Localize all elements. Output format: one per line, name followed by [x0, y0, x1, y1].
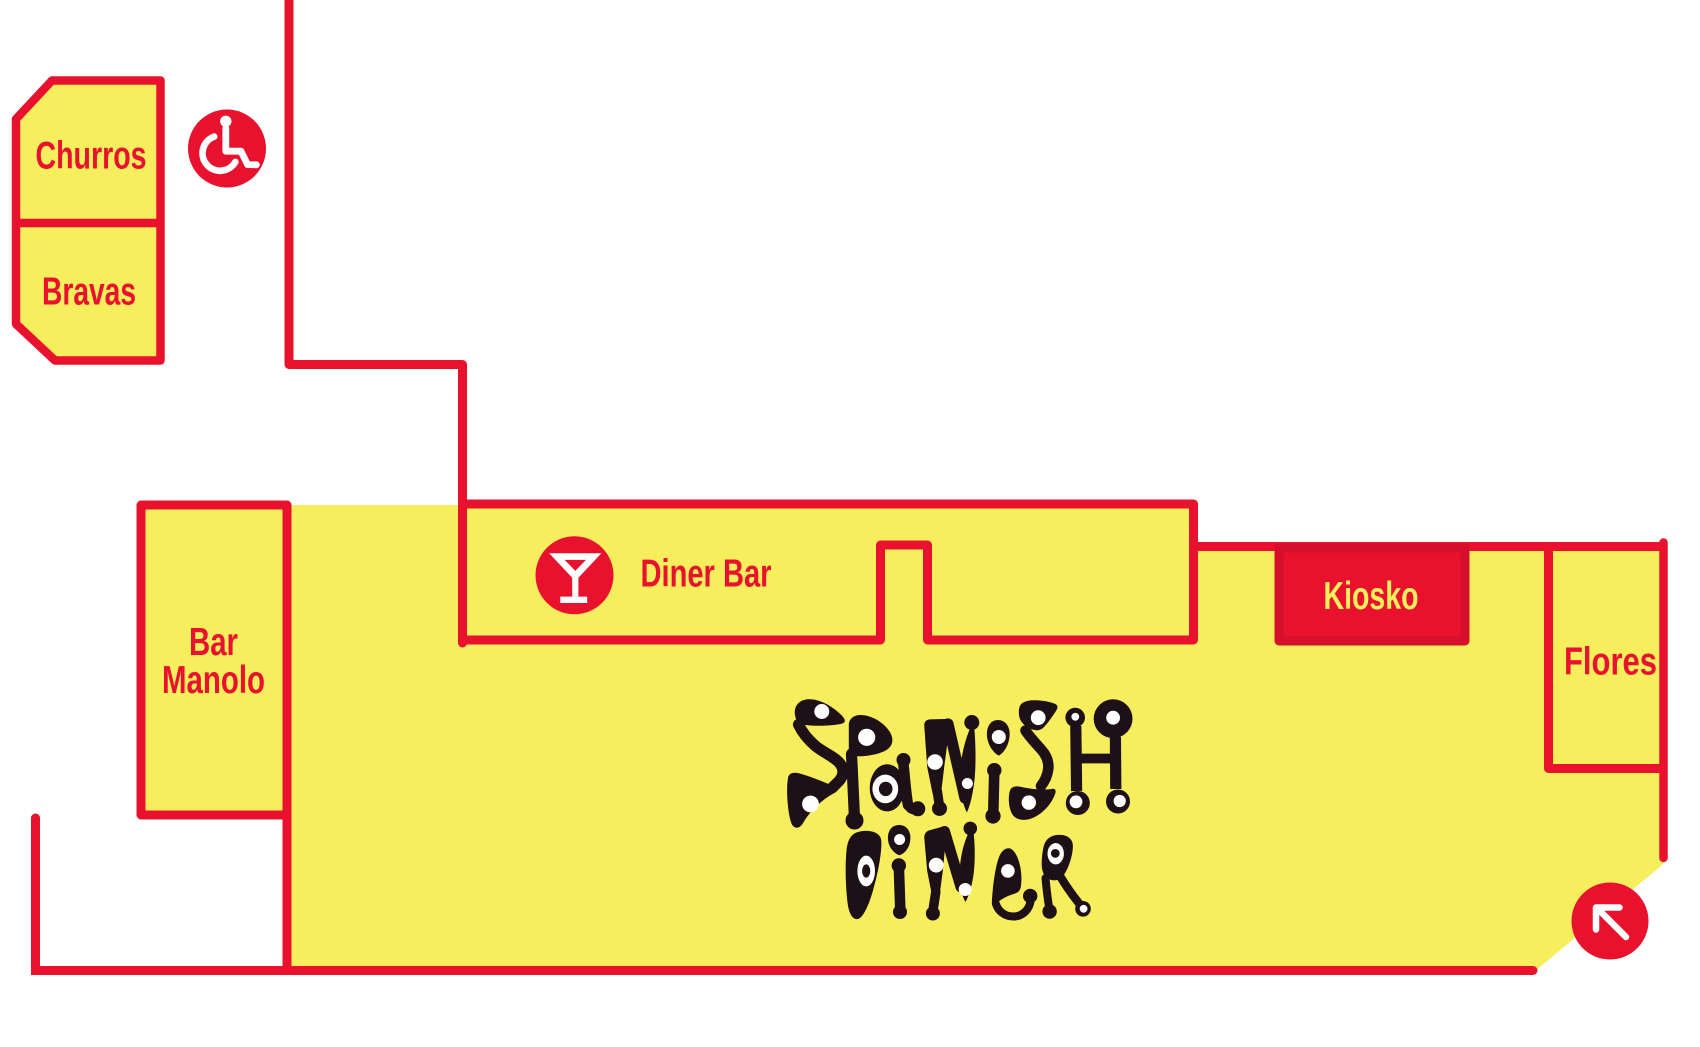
svg-text:Kiosko: Kiosko — [1324, 575, 1419, 618]
svg-text:Bravas: Bravas — [42, 271, 136, 314]
svg-text:Flores: Flores — [1564, 641, 1657, 684]
svg-text:Manolo: Manolo — [162, 659, 265, 702]
svg-text:Diner Bar: Diner Bar — [641, 553, 772, 596]
svg-text:Bar: Bar — [189, 621, 238, 664]
svg-text:Churros: Churros — [36, 135, 147, 178]
